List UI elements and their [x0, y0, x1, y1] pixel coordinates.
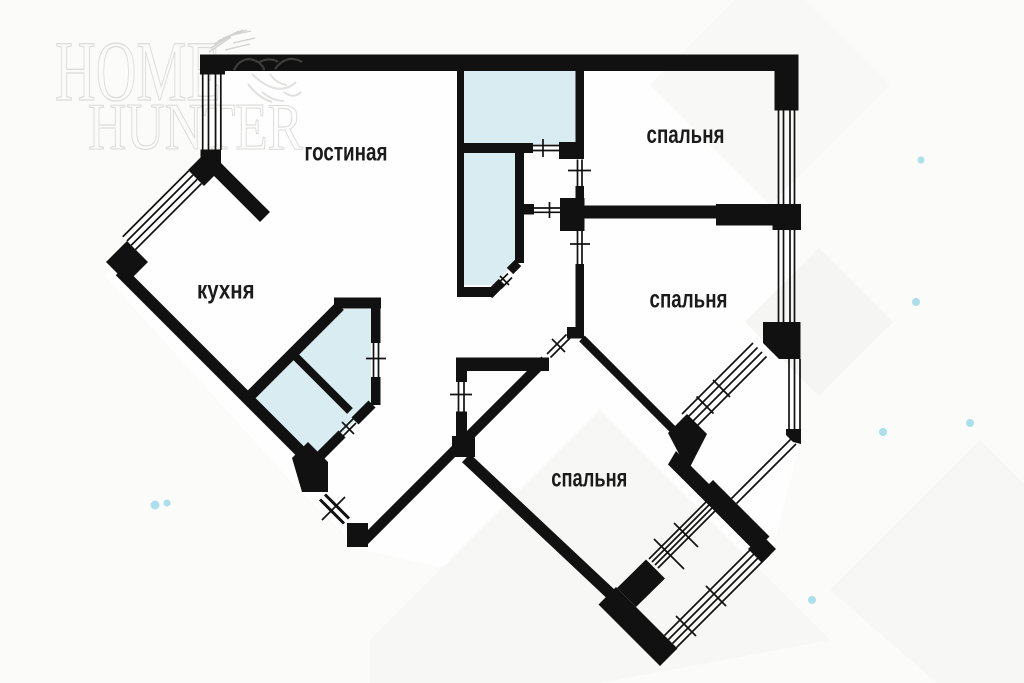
svg-text:спальня: спальня	[551, 465, 627, 493]
svg-text:спальня: спальня	[647, 121, 725, 149]
svg-text:кухня: кухня	[197, 277, 255, 305]
svg-text:спальня: спальня	[650, 286, 728, 314]
svg-text:гостиная: гостиная	[305, 139, 388, 167]
